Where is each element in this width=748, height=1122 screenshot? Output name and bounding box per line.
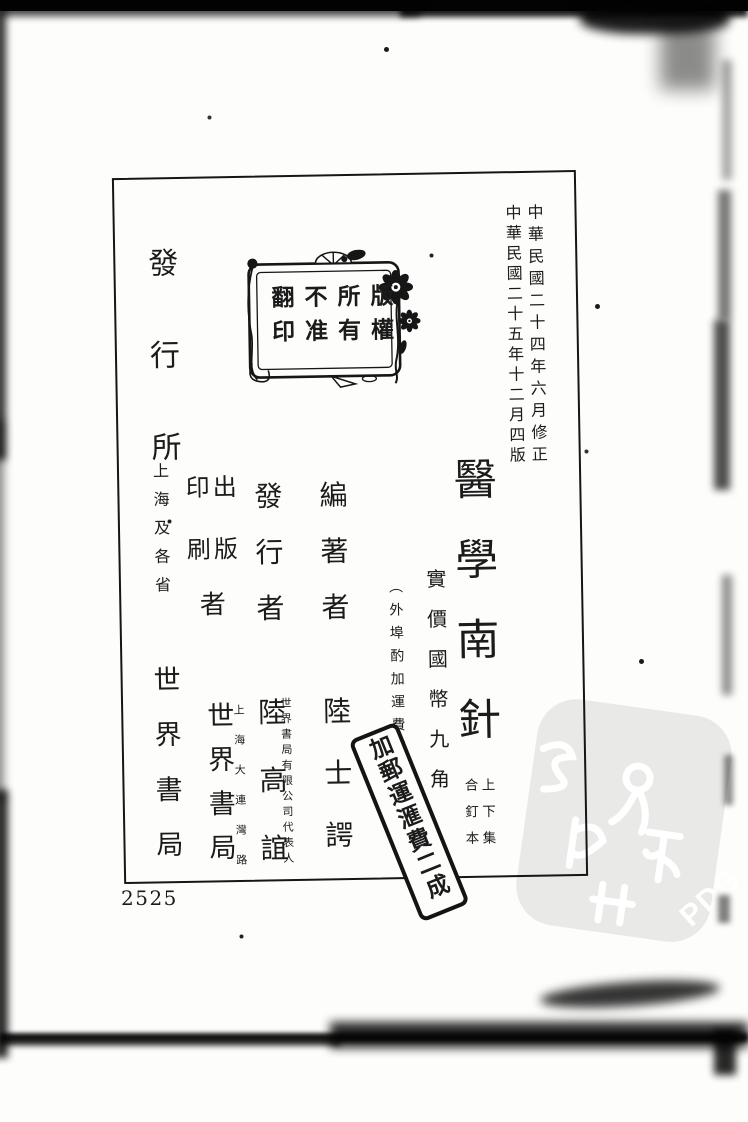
small-flower-icon [398,309,421,332]
publisher-annotation: 世界書局有限公司代表人 [280,697,294,868]
distributor-region: 上海及各省 [151,462,169,605]
scan-edge-bottom-left [0,1038,340,1046]
serial-number: 2525 [121,886,178,910]
printer-role-suffix: 者 [197,590,223,616]
editor-name: 陸士諤 [321,696,352,882]
binding-format: 合釘本 [460,778,478,858]
scan-edge-left-upper [0,0,6,460]
scan-streak-right-6 [718,895,730,923]
scan-streak-right-1 [722,60,732,180]
printer-annotation: 上海大連灣路 [233,704,247,884]
printer-role-right: 出版 [210,474,236,598]
scan-smudge-bottom [539,976,720,1012]
scan-streak-right-5 [724,755,733,805]
scan-edge-top-fade [0,4,420,16]
scan-streak-right-7 [714,1030,736,1075]
binding-volumes: 上下集 [477,778,495,858]
scan-streak-right-2 [718,190,731,320]
distributor-name: 世界書局 [150,665,181,885]
binding-note: 上下集 合釘本 [460,778,495,858]
scanned-page: PDG 中華民國二十四年六月修正 中華民國二十五年十二月四版 [0,0,748,1122]
copyright-seal: 版權 所有 不准 翻印 [243,249,422,398]
scan-blob-top-right-fade [660,24,715,90]
printer-name: 世界書局 [204,701,234,877]
scan-edge-left-lower [0,790,8,1058]
scan-edge-bottom-heavy [330,1022,748,1048]
edition-notice: 中華民國二十四年六月修正 中華民國二十五年十二月四版 [500,204,549,469]
edition-revised-line: 中華民國二十四年六月修正 [522,204,549,468]
seal-col-4: 翻印 [264,285,298,354]
editor-role-label: 編著者 [317,480,348,648]
price: 實價國幣九角 [425,568,449,808]
bud-icon [248,259,257,268]
book-title: 醫學南針 [449,457,498,778]
scan-streak-right-3 [714,320,730,490]
edition-printed-line: 中華民國二十五年十二月四版 [500,204,527,468]
scan-specks [0,0,3,3]
copyright-seal-text: 版權 所有 不准 翻印 [264,283,397,353]
seal-col-1: 版權 [363,283,397,352]
publisher-role-label: 發行者 [252,481,283,649]
scan-streak-right-4 [722,575,732,695]
colophon-box: 中華民國二十四年六月修正 中華民國二十五年十二月四版 [112,170,588,884]
leaf-icon [346,249,366,262]
seal-col-2: 所有 [330,284,364,353]
scan-edge-left-mid [0,420,3,800]
seal-col-3: 不准 [297,284,331,353]
printer-role-left: 印刷 [183,474,209,598]
